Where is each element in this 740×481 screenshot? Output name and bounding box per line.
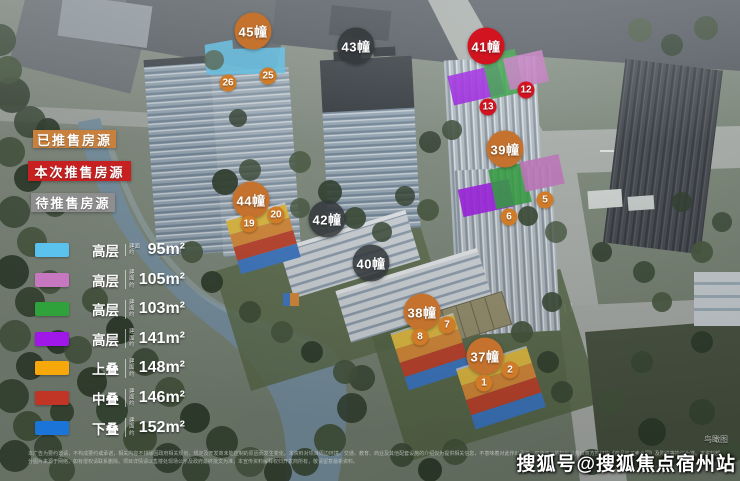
legend-status-label: 本次推售房源 bbox=[28, 161, 131, 181]
legend-area-prefix: 建面约 bbox=[125, 270, 139, 289]
unit-number-badge: 6 bbox=[501, 209, 518, 226]
building-badge-38幢: 38幢 bbox=[404, 294, 441, 331]
building-badge-42幢: 42幢 bbox=[309, 201, 346, 238]
legend-area-prefix: 建面约 bbox=[125, 300, 139, 319]
legend-area-value: 105m² bbox=[139, 271, 185, 289]
building-badge-40幢: 40幢 bbox=[353, 245, 390, 282]
legend-area-value: 148m² bbox=[139, 359, 185, 377]
legend-row: 高层建面约103m² bbox=[35, 299, 185, 319]
legend-area-prefix: 建面约 bbox=[125, 359, 139, 378]
unit-number-badge: 2 bbox=[502, 362, 519, 379]
unit-number-badge: 13 bbox=[480, 99, 497, 116]
legend-color-swatch bbox=[35, 302, 69, 316]
legend-type-label: 下叠 bbox=[92, 418, 119, 438]
legend-row: 高层建面约95m² bbox=[35, 240, 185, 260]
legend-type-label: 上叠 bbox=[92, 358, 119, 378]
aerial-map: 已推售房源本次推售房源待推售房源高层建面约95m²高层建面约105m²高层建面约… bbox=[0, 0, 740, 481]
unit-number-badge: 7 bbox=[439, 317, 456, 334]
corner-note: 鸟瞰图 bbox=[704, 434, 728, 445]
watermark: 搜狐号@搜狐焦点宿州站 bbox=[516, 449, 736, 476]
building-badge-41幢: 41幢 bbox=[468, 28, 505, 65]
unit-number-badge: 1 bbox=[476, 375, 493, 392]
legend-row: 高层建面约141m² bbox=[35, 329, 185, 349]
building-badge-45幢: 45幢 bbox=[235, 13, 272, 50]
legend-area-prefix: 建面约 bbox=[125, 418, 139, 437]
legend-type-label: 高层 bbox=[92, 240, 119, 260]
legend-color-swatch bbox=[35, 273, 69, 287]
legend-area-prefix: 建面约 bbox=[125, 329, 139, 348]
legend-color-swatch bbox=[35, 361, 69, 375]
building-badge-37幢: 37幢 bbox=[467, 338, 504, 375]
unit-number-badge: 5 bbox=[537, 192, 554, 209]
unit-number-badge: 26 bbox=[220, 75, 237, 92]
building-badge-44幢: 44幢 bbox=[233, 182, 270, 219]
legend-type-label: 高层 bbox=[92, 270, 119, 290]
unit-number-badge: 12 bbox=[518, 82, 535, 99]
unit-number-badge: 19 bbox=[241, 216, 258, 233]
unit-number-badge: 25 bbox=[260, 68, 277, 85]
legend-color-swatch bbox=[35, 332, 69, 346]
legend-row: 下叠建面约152m² bbox=[35, 418, 185, 438]
legend-color-swatch bbox=[35, 243, 69, 257]
legend-area-prefix: 建面约 bbox=[125, 244, 142, 257]
legend-area-value: 152m² bbox=[139, 419, 185, 437]
unit-number-badge: 8 bbox=[412, 329, 429, 346]
legend-area-value: 103m² bbox=[139, 300, 185, 318]
legend-area-value: 146m² bbox=[139, 389, 185, 407]
legend-status-label: 已推售房源 bbox=[33, 130, 116, 148]
legend-row: 高层建面约105m² bbox=[35, 270, 185, 290]
building-badge-43幢: 43幢 bbox=[338, 28, 375, 65]
legend-area-value: 95m² bbox=[148, 241, 185, 259]
legend-area-value: 141m² bbox=[139, 330, 185, 348]
legend-row: 中叠建面约146m² bbox=[35, 388, 185, 408]
building-badge-39幢: 39幢 bbox=[487, 131, 524, 168]
legend-color-swatch bbox=[35, 391, 69, 405]
unit-number-badge: 20 bbox=[268, 207, 285, 224]
legend-area-prefix: 建面约 bbox=[125, 389, 139, 408]
legend-color-swatch bbox=[35, 421, 69, 435]
legend-type-label: 高层 bbox=[92, 299, 119, 319]
legend-status-label: 待推售房源 bbox=[31, 193, 115, 212]
legend-row: 上叠建面约148m² bbox=[35, 358, 185, 378]
legend-type-label: 高层 bbox=[92, 329, 119, 349]
legend-type-label: 中叠 bbox=[92, 388, 119, 408]
